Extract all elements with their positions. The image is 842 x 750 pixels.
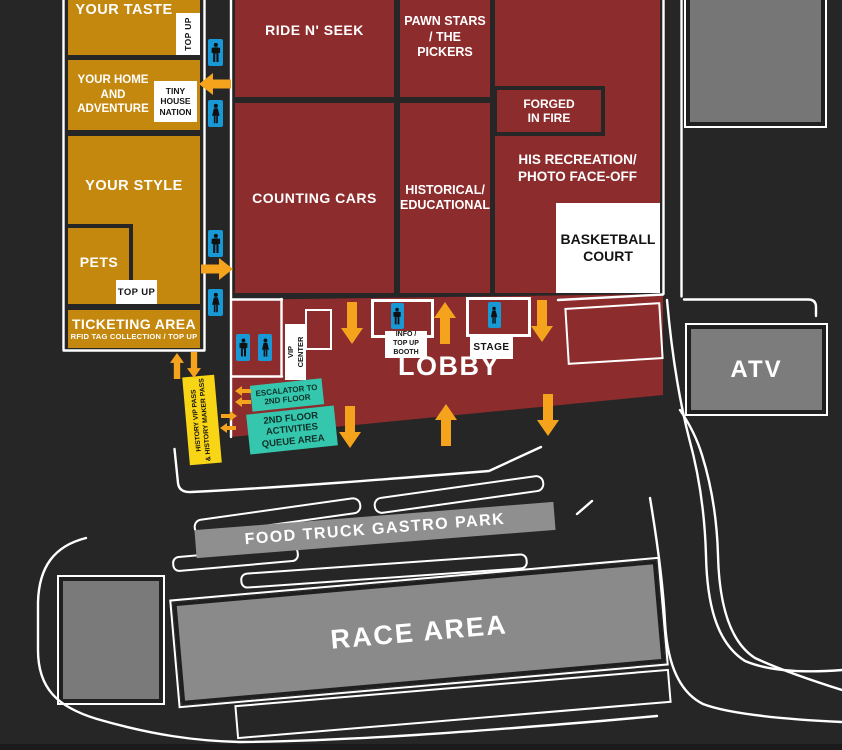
road-descent-b (680, 410, 842, 690)
vip-center-label: VIP CENTER (285, 324, 306, 380)
venue-map: YOUR TASTE TOP UP YOUR HOME AND ADVENTUR… (0, 0, 842, 750)
his-recreation-label: HIS RECREATION/ PHOTO FACE-OFF (495, 152, 660, 185)
zone-counting-cars: COUNTING CARS (235, 103, 394, 293)
zone-forged-in-fire-frame: FORGED IN FIRE (493, 86, 605, 136)
ride-n-seek-label: RIDE N' SEEK (235, 22, 394, 38)
female-restroom-icon (208, 100, 223, 127)
direction-arrow-icon (220, 423, 236, 433)
top-up-badge-taste: TOP UP (176, 13, 200, 55)
top-up-badge-pets: TOP UP (116, 280, 157, 304)
direction-arrow-icon (199, 73, 231, 95)
zone-ticketing-area: TICKETING AREA RFID TAG COLLECTION / TOP… (68, 310, 200, 348)
parking-block-top-right (686, 0, 825, 126)
zone-pets-label: PETS (68, 254, 130, 270)
race-area-label: RACE AREA (329, 609, 509, 655)
male-restroom-icon (391, 303, 404, 329)
female-restroom-icon (258, 334, 272, 361)
history-pass-label: HISTORY VIP PASS & HISTORY MAKER PASS (182, 375, 222, 465)
bottom-strip (0, 744, 842, 750)
lobby-booth-outline-left (305, 309, 332, 350)
female-restroom-icon (208, 289, 223, 316)
vip-center-booth: VIP CENTER (285, 324, 306, 380)
basketball-court-label: BASKETBALL COURT (561, 231, 656, 265)
ticketing-subtitle: RFID TAG COLLECTION / TOP UP (71, 333, 198, 342)
direction-arrow-icon (434, 302, 456, 344)
zone-your-home-label: YOUR HOME AND ADVENTURE (70, 73, 156, 117)
zone-your-home-adventure: YOUR HOME AND ADVENTURE TINY HOUSE NATIO… (68, 60, 200, 130)
zone-historical-educational: HISTORICAL/ EDUCATIONAL (400, 103, 490, 293)
tiny-house-nation-badge: TINY HOUSE NATION (154, 81, 197, 122)
female-restroom-icon (488, 302, 501, 328)
direction-arrow-icon (435, 404, 457, 446)
male-restroom-icon (208, 39, 223, 66)
top-up-badge-pets-text: TOP UP (118, 287, 155, 298)
road-race-wrap (650, 498, 842, 722)
direction-arrow-icon (235, 397, 251, 407)
direction-arrow-icon (201, 258, 233, 280)
zone-your-taste-label: YOUR TASTE (68, 2, 180, 19)
zone-ride-n-seek: RIDE N' SEEK (235, 0, 394, 97)
top-up-badge-taste-text: TOP UP (176, 13, 200, 55)
atv-label: ATV (730, 356, 782, 384)
direction-arrow-icon (339, 406, 361, 448)
direction-arrow-icon (235, 386, 251, 396)
zone-forged-in-fire: FORGED IN FIRE (497, 90, 601, 132)
history-pass-text: HISTORY VIP PASS & HISTORY MAKER PASS (182, 375, 222, 465)
pets-divider-h (68, 224, 130, 228)
direction-arrow-icon (170, 353, 184, 379)
direction-arrow-icon (221, 411, 237, 421)
lobby-booth-outline-right (564, 302, 663, 365)
lobby-label: LOBBY (398, 351, 500, 382)
basketball-court: BASKETBALL COURT (556, 203, 660, 293)
direction-arrow-icon (537, 394, 559, 436)
ticketing-title: TICKETING AREA (72, 316, 196, 332)
zone-pawn-stars: PAWN STARS / THE PICKERS (400, 0, 490, 97)
forged-in-fire-label: FORGED IN FIRE (523, 97, 574, 126)
direction-arrow-icon (187, 352, 201, 378)
male-restroom-icon (208, 230, 223, 257)
direction-arrow-icon (341, 302, 363, 344)
pets-divider-v (129, 224, 133, 280)
male-restroom-icon (236, 334, 250, 361)
road-slash-mark (577, 501, 592, 514)
zone-atv: ATV (687, 325, 826, 414)
queue-area-label: 2ND FLOOR ACTIVITIES QUEUE AREA (246, 406, 338, 455)
tiny-house-nation-text: TINY HOUSE NATION (160, 86, 192, 118)
road-atv-top (684, 300, 816, 317)
zone-your-style: YOUR STYLE PETS TOP UP (68, 136, 200, 304)
zone-your-style-label: YOUR STYLE (68, 178, 200, 195)
parking-block-bottom-left (59, 577, 163, 703)
historical-educational-label: HISTORICAL/ EDUCATIONAL (400, 183, 490, 214)
pawn-stars-label: PAWN STARS / THE PICKERS (400, 14, 490, 61)
direction-arrow-icon (531, 300, 553, 342)
counting-cars-label: COUNTING CARS (252, 190, 377, 206)
